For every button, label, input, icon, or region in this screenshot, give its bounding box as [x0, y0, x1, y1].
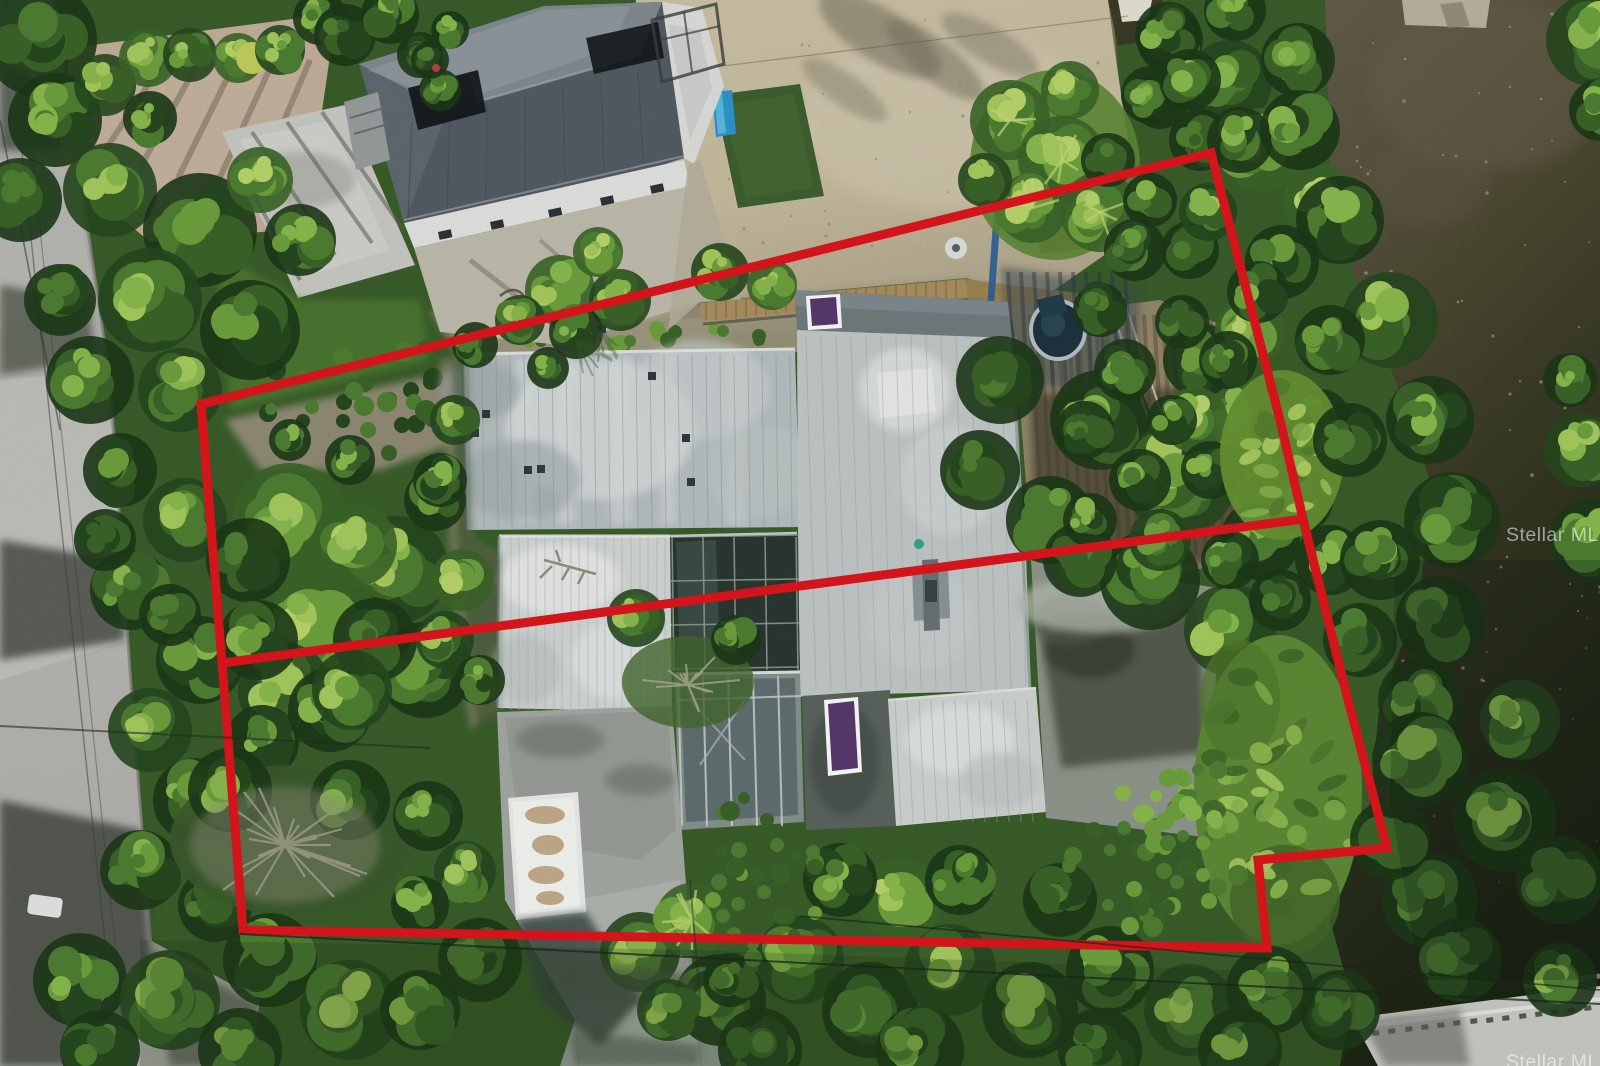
- svg-text:Stellar MLS: Stellar MLS: [1506, 1051, 1600, 1066]
- svg-text:Stellar MLS: Stellar MLS: [1506, 524, 1600, 546]
